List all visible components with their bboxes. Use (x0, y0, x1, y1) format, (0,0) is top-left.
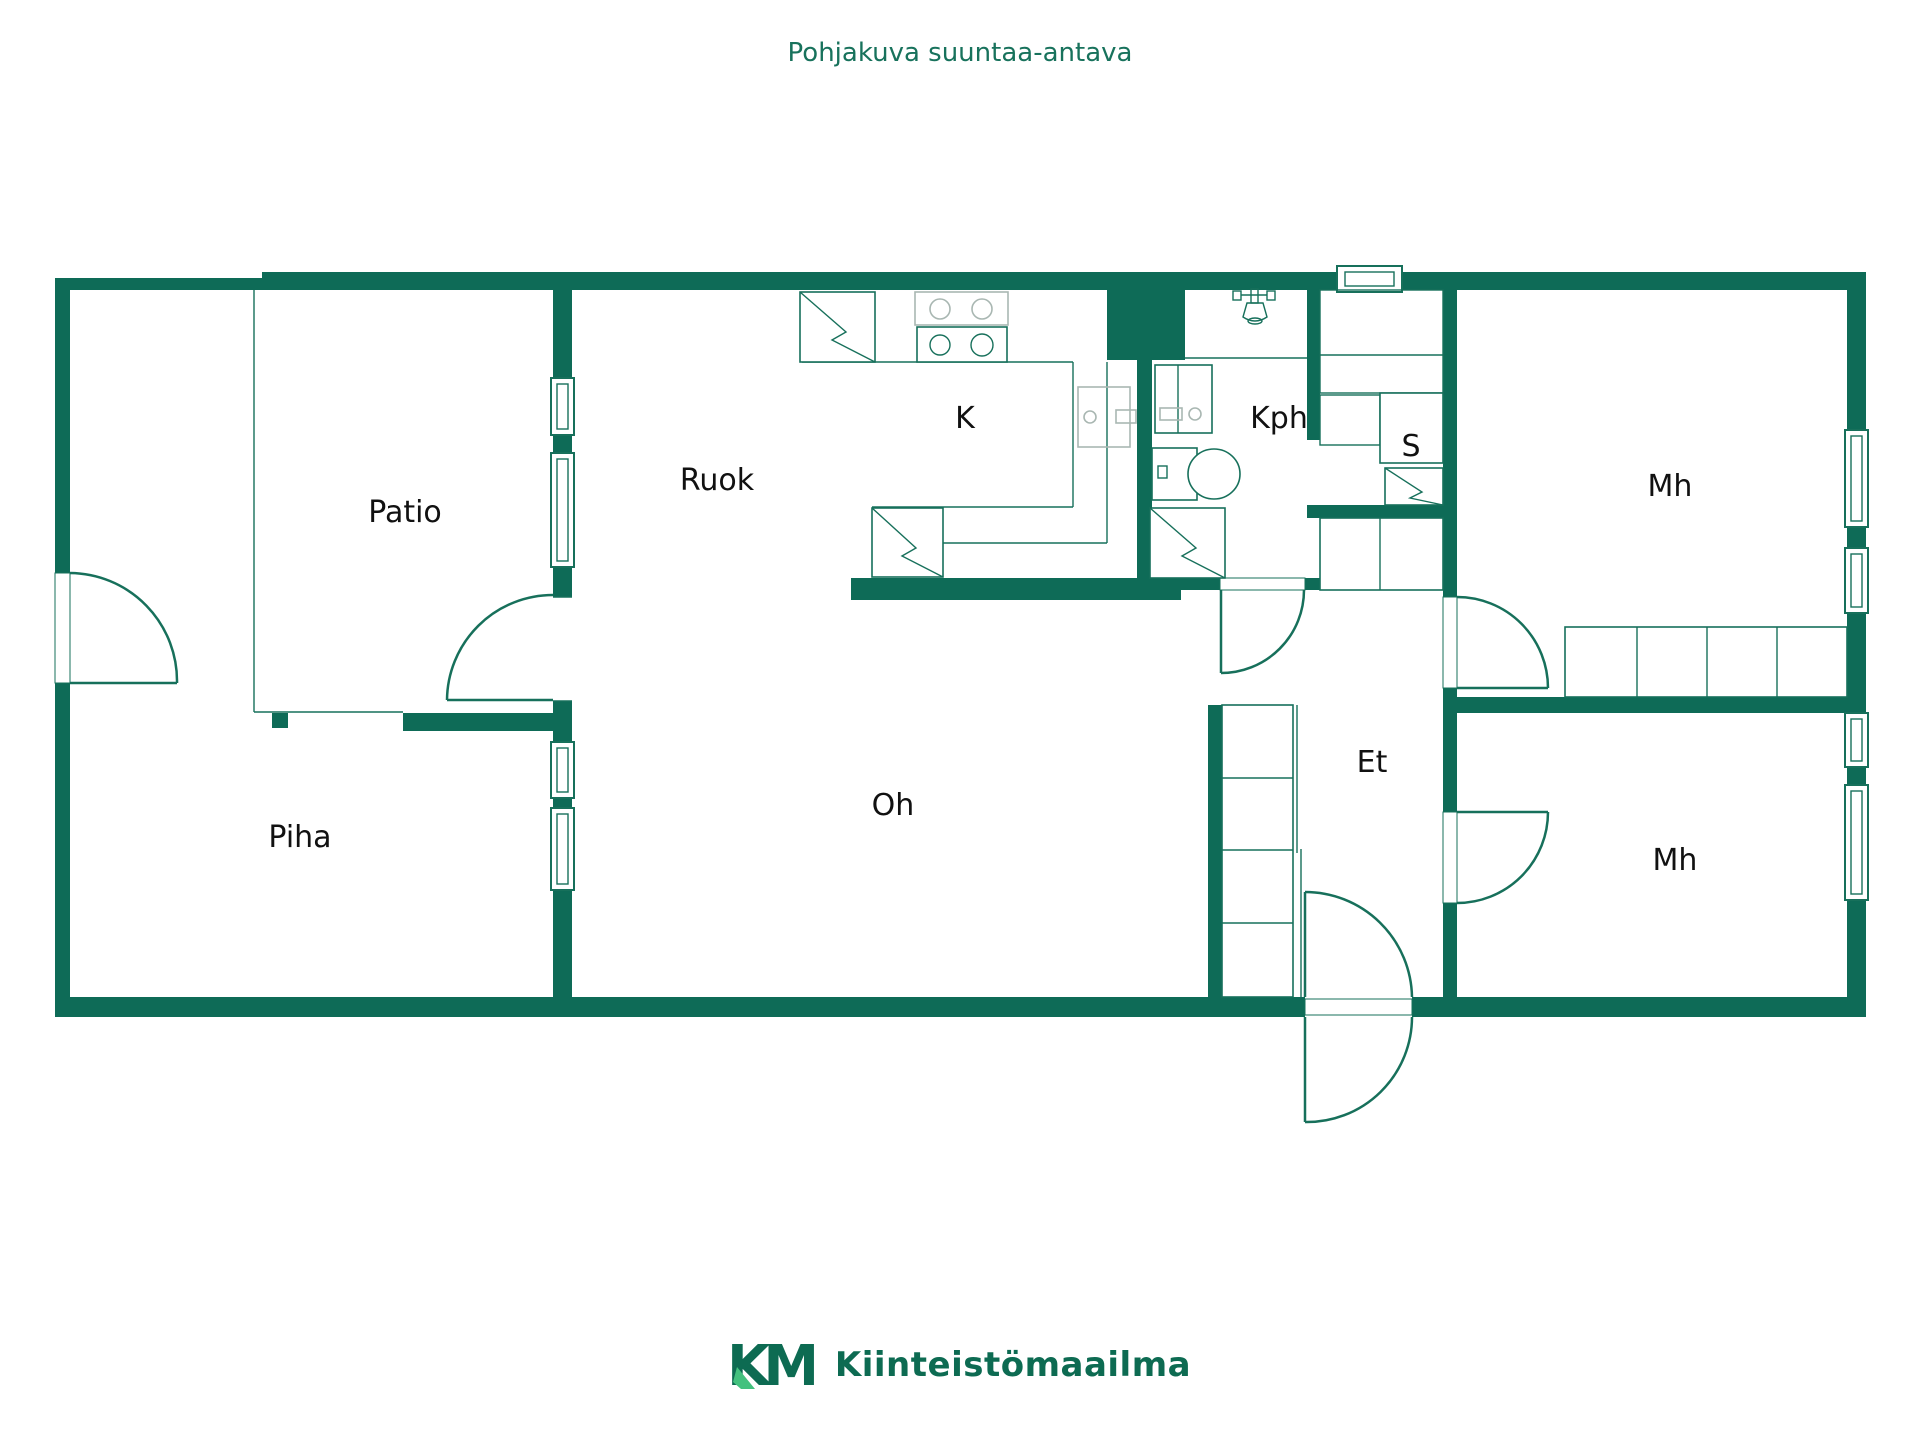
wall-segment (553, 890, 572, 997)
company-name: Kiinteistömaailma (835, 1345, 1191, 1385)
room-label-k: K (955, 401, 976, 436)
wall-segment (851, 578, 1181, 600)
dishwasher-icon (872, 508, 943, 577)
wall-segment (1847, 527, 1866, 548)
wall-segment (55, 278, 70, 573)
wall-segment (1443, 903, 1457, 997)
wall-segment (1107, 272, 1185, 360)
wall-segment (1847, 767, 1866, 785)
window (1845, 785, 1868, 900)
toilet-icon (1152, 448, 1240, 500)
bedroom1-door (1443, 597, 1548, 688)
window (551, 742, 574, 798)
room-label-s: S (1401, 429, 1420, 464)
sauna-window (1337, 266, 1402, 292)
room-label-mh2: Mh (1653, 843, 1698, 878)
wall-segment (1443, 272, 1457, 597)
patio-door (447, 595, 572, 701)
wall-segment (55, 278, 262, 290)
wall-segment (1847, 900, 1866, 997)
fixtures (800, 289, 1847, 997)
floor-plan-page: Pohjakuva suuntaa-antava (0, 0, 1920, 1440)
window (551, 453, 574, 567)
wall-segment (553, 435, 572, 453)
stove-icon (915, 292, 1008, 362)
wall-segment (1208, 705, 1222, 997)
sauna-stove-icon (1385, 468, 1443, 505)
wall-segment (553, 798, 572, 808)
room-label-kph: Kph (1250, 401, 1308, 436)
floor-plan: Patio Piha Ruok K Oh Kph S Et Mh Mh (0, 0, 1920, 1440)
wall-segment (553, 701, 572, 742)
window (551, 808, 574, 890)
sauna-benches (1320, 290, 1443, 463)
window (1845, 713, 1868, 767)
wall-segment (1307, 272, 1320, 440)
washbasin-icon (1155, 365, 1212, 433)
room-label-ruok: Ruok (680, 463, 755, 498)
wall-segment (1412, 997, 1866, 1017)
wall-segment (1443, 697, 1866, 713)
wall-segment (1307, 505, 1457, 518)
wall-segment (403, 713, 553, 731)
window (1845, 430, 1868, 527)
wall-segment (553, 290, 572, 378)
room-label-oh: Oh (872, 788, 915, 823)
wall-segment (272, 713, 288, 728)
room-label-et: Et (1357, 745, 1388, 780)
company-logo: KM Kiinteistömaailma (0, 1340, 1920, 1390)
room-label-piha: Piha (268, 820, 331, 855)
wall-segment (262, 272, 1866, 290)
bathroom-door (1220, 578, 1305, 673)
refrigerator-icon (800, 292, 875, 362)
wall-segment (1847, 272, 1866, 430)
wall-segment (55, 997, 1305, 1017)
wardrobe-row (1565, 627, 1847, 697)
yard-door (55, 573, 177, 683)
wall-segment (1305, 578, 1320, 590)
km-logo-icon: KM (729, 1340, 817, 1390)
bedroom2-door (1443, 812, 1548, 903)
wall-segment (553, 567, 572, 597)
hall-wardrobe (1222, 705, 1301, 997)
room-label-patio: Patio (368, 495, 442, 530)
window (551, 378, 574, 435)
wall-segment (55, 683, 70, 1017)
entrance-door (1305, 892, 1412, 1122)
window (1845, 548, 1868, 613)
shower-icon (1233, 289, 1275, 324)
room-label-mh1: Mh (1648, 469, 1693, 504)
room-labels: Patio Piha Ruok K Oh Kph S Et Mh Mh (268, 401, 1697, 878)
sauna-doorway (1307, 440, 1320, 505)
water-heater-icon (1150, 508, 1225, 578)
hall-closet (1320, 518, 1443, 590)
